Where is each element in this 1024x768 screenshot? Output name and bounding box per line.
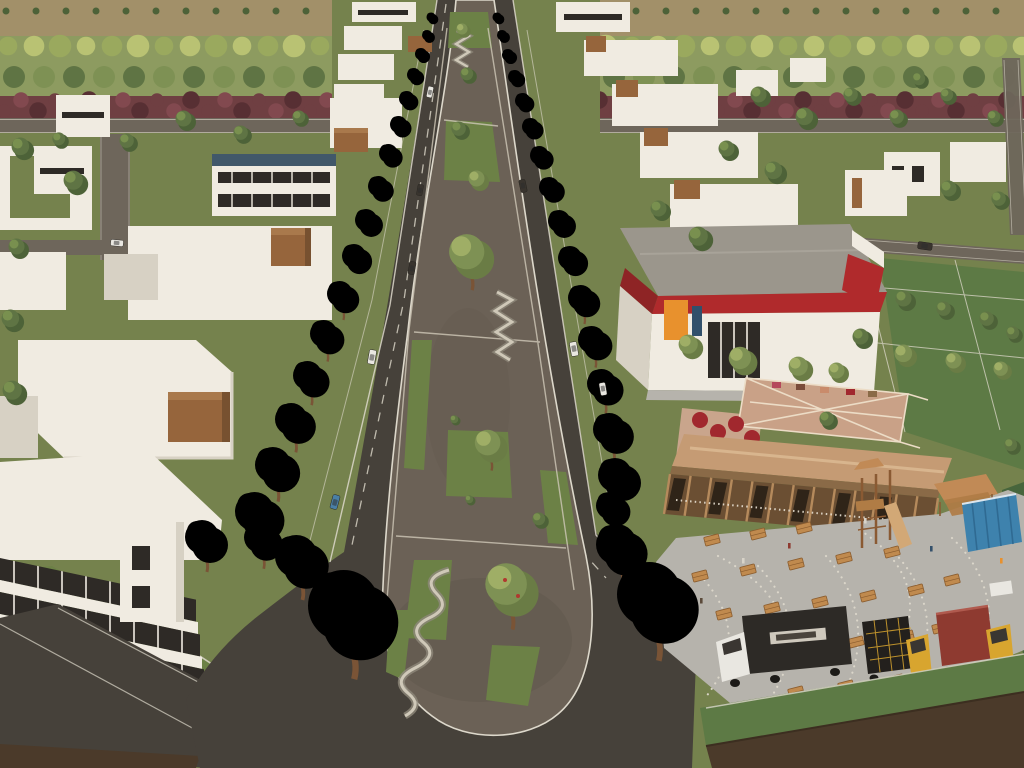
hedge-tree bbox=[778, 103, 793, 118]
orchard-tree bbox=[726, 36, 747, 57]
field-tree bbox=[903, 8, 910, 15]
orchard-tree bbox=[283, 35, 306, 58]
orchard-tree bbox=[258, 36, 279, 57]
left-house bbox=[56, 95, 110, 137]
orchard-tree bbox=[873, 66, 895, 88]
orchard-tree bbox=[960, 36, 981, 57]
orchard-tree bbox=[907, 35, 930, 58]
orchard-tree bbox=[857, 37, 876, 56]
field-tree bbox=[753, 8, 760, 15]
orchard-tree bbox=[102, 36, 123, 57]
hedge-tree bbox=[182, 91, 199, 108]
right-house bbox=[612, 80, 718, 126]
school-building bbox=[212, 154, 336, 216]
masterplan-render-screenshot bbox=[0, 0, 1024, 768]
right-house bbox=[845, 170, 907, 216]
orchard-tree bbox=[213, 66, 235, 88]
field-tree bbox=[153, 8, 160, 15]
orchard-tree bbox=[882, 36, 903, 57]
orchard-tree bbox=[24, 36, 45, 57]
hedge-tree bbox=[966, 93, 979, 106]
render-scene bbox=[0, 0, 1024, 768]
orchard-tree bbox=[751, 35, 774, 58]
hedge-tree bbox=[915, 104, 928, 117]
hedge-tree bbox=[864, 93, 877, 106]
hedge-tree bbox=[284, 91, 301, 108]
field-tree bbox=[33, 8, 40, 15]
field-tree bbox=[873, 8, 880, 15]
right-house bbox=[790, 58, 826, 82]
orchard-tree bbox=[233, 37, 252, 56]
field-tree bbox=[303, 8, 310, 15]
orchard-tree bbox=[843, 66, 865, 88]
orchard-tree bbox=[180, 36, 201, 57]
hedge-tree bbox=[201, 104, 214, 117]
orchard-tree bbox=[33, 66, 55, 88]
field-tree bbox=[843, 8, 850, 15]
orchard-tree bbox=[273, 66, 295, 88]
corridor-house bbox=[334, 84, 384, 110]
orchard-tree bbox=[804, 36, 825, 57]
orchard-tree bbox=[3, 66, 25, 88]
hedge-tree bbox=[794, 91, 811, 108]
car-roof bbox=[114, 241, 120, 245]
orchard-tree bbox=[963, 66, 985, 88]
field-tree bbox=[213, 8, 220, 15]
orchard-tree bbox=[93, 66, 115, 88]
field-tree bbox=[963, 8, 970, 15]
orchard-tree bbox=[127, 35, 150, 58]
market-sign-small bbox=[692, 306, 702, 336]
orchard-tree bbox=[935, 37, 954, 56]
left-house bbox=[0, 252, 66, 310]
field-tree bbox=[243, 8, 250, 15]
right-house bbox=[556, 2, 630, 32]
left-big-roof-house bbox=[104, 226, 332, 320]
hedge-tree bbox=[115, 92, 130, 107]
hedge-tree bbox=[13, 92, 28, 107]
right-house bbox=[640, 128, 758, 178]
market-sign bbox=[664, 300, 688, 340]
field-tree bbox=[933, 8, 940, 15]
field-tree bbox=[783, 8, 790, 15]
red-blossom bbox=[503, 578, 507, 582]
field-tree bbox=[693, 8, 700, 15]
field-tree bbox=[663, 8, 670, 15]
orchard-tree bbox=[829, 35, 852, 58]
orchard-tree bbox=[985, 35, 1008, 58]
car bbox=[110, 239, 123, 246]
red-blossom bbox=[516, 594, 520, 598]
orchard-tree bbox=[701, 37, 720, 56]
shipping-container bbox=[962, 494, 1022, 552]
orchard-tree bbox=[49, 35, 72, 58]
field-tree bbox=[273, 8, 280, 15]
hedge-tree bbox=[947, 102, 964, 119]
orchard-tree bbox=[311, 37, 330, 56]
field-tree bbox=[3, 8, 10, 15]
orchard-tree bbox=[205, 35, 228, 58]
field-tree bbox=[183, 8, 190, 15]
right-house bbox=[584, 36, 678, 76]
field-tree bbox=[993, 8, 1000, 15]
orchard-tree bbox=[183, 66, 205, 88]
orchard-tree bbox=[303, 66, 325, 88]
hedge-tree bbox=[150, 93, 163, 106]
orchard-tree bbox=[153, 66, 175, 88]
orchard-tree bbox=[243, 66, 265, 88]
orchard-tree bbox=[77, 37, 96, 56]
field-tree bbox=[63, 8, 70, 15]
hedge-tree bbox=[217, 92, 232, 107]
orchard-tree bbox=[933, 66, 955, 88]
corridor-house bbox=[352, 2, 416, 22]
field-tree bbox=[813, 8, 820, 15]
field-tree bbox=[633, 8, 640, 15]
car-roof bbox=[921, 243, 928, 248]
field-tree bbox=[93, 8, 100, 15]
hedge-tree bbox=[131, 102, 148, 119]
orchard-tree bbox=[123, 66, 145, 88]
orchard-tree bbox=[779, 37, 798, 56]
right-house bbox=[950, 142, 1006, 182]
field-tree bbox=[723, 8, 730, 15]
hedge-tree bbox=[252, 93, 265, 106]
hedge-tree bbox=[268, 103, 283, 118]
hedge-tree bbox=[29, 102, 46, 119]
orchard-tree bbox=[155, 37, 174, 56]
corridor-house bbox=[344, 26, 402, 50]
hedge-tree bbox=[829, 92, 844, 107]
orchard-tree bbox=[63, 66, 85, 88]
hedge-tree bbox=[896, 91, 913, 108]
field-tree bbox=[123, 8, 130, 15]
hedge-tree bbox=[233, 102, 250, 119]
